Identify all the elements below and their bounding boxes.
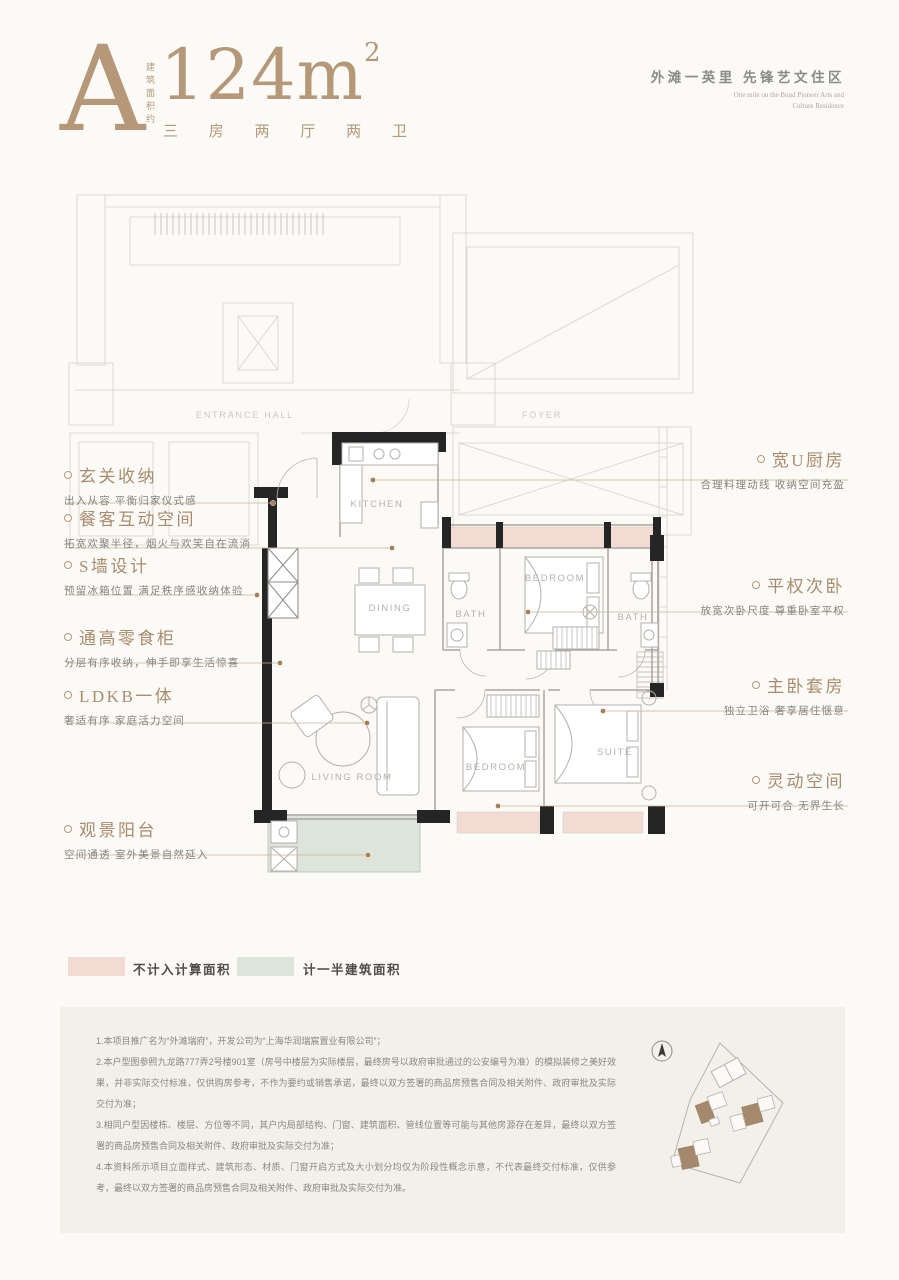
bedroom2-label: BEDROOM bbox=[466, 762, 526, 773]
project-tagline-cn: 外滩一英里 先锋艺文住区 bbox=[651, 66, 845, 86]
annotation-desc: 合理料理动线 收纳空间充盈 bbox=[615, 477, 845, 492]
annotation-desc: 拓宽欢聚半径，烟火与欢笑自在流淌 bbox=[64, 536, 294, 551]
project-tagline-en: One mile on the Bund Pioneer Arts and Cu… bbox=[734, 90, 844, 112]
annotation-ldkb: LDKB一体 奢适有序 家庭活力空间 bbox=[64, 682, 294, 728]
annotation-title: 玄关收纳 bbox=[79, 462, 157, 487]
legend-swatch-green bbox=[237, 957, 294, 976]
floorplan-page: A 建筑面积约 124m2 三 房 两 厅 两 卫 外滩一英里 先锋艺文住区 O… bbox=[0, 0, 899, 1280]
site-building-cluster-3 bbox=[668, 1139, 712, 1172]
annotation-desc: 放宽次卧尺度 尊重卧室平权 bbox=[615, 603, 845, 618]
annotation-title: 宽U厨房 bbox=[772, 446, 845, 471]
compass-needle bbox=[658, 1043, 666, 1057]
bath1-label: BATH bbox=[455, 609, 486, 620]
annotation-desc: 奢适有序 家庭活力空间 bbox=[64, 713, 294, 728]
tagline-en-line1: One mile on the Bund Pioneer Arts and bbox=[734, 90, 844, 101]
annotation-master-suite: 主卧套房 独立卫浴 奢享居住惬意 bbox=[615, 672, 845, 718]
annotation-entry-storage: 玄关收纳 出入从容 平衡归家仪式感 bbox=[64, 462, 294, 508]
annotation-snack-cabinet: 通高零食柜 分层有序收纳，伸手即享生活惊喜 bbox=[64, 624, 294, 670]
site-building-outline bbox=[711, 1058, 746, 1088]
upper-stair-hatch bbox=[155, 213, 323, 235]
ring-bullet-icon bbox=[64, 561, 72, 569]
tagline-en-line2: Culture Residence bbox=[734, 101, 844, 112]
annotation-desc: 可开可合 无界生长 bbox=[615, 798, 845, 813]
annotation-title: 平权次卧 bbox=[767, 572, 845, 597]
suite-label: SUITE bbox=[597, 747, 633, 758]
ring-bullet-icon bbox=[64, 633, 72, 641]
entrance-hall-label: ENTRANCE HALL bbox=[196, 410, 294, 420]
disclaimer-panel: 1.本项目推广名为“外滩瑞府”，开发公司为“上海华润瑞宸置业有限公司”； 2.本… bbox=[60, 1007, 845, 1233]
annotation-title: 通高零食柜 bbox=[79, 624, 177, 649]
disclaimer-item: 1.本项目推广名为“外滩瑞府”，开发公司为“上海华润瑞宸置业有限公司”； bbox=[96, 1031, 616, 1052]
annotation-desc: 空间通透 室外美景自然延入 bbox=[64, 847, 294, 862]
site-building-cluster-1 bbox=[694, 1092, 732, 1130]
annotation-desc: 独立卫浴 奢享居住惬意 bbox=[615, 703, 845, 718]
unit-letter: A bbox=[60, 30, 145, 148]
annotation-s-wall: S墙设计 预留冰箱位置 满足秩序感收纳体验 bbox=[64, 552, 294, 598]
area-value: 124m2 bbox=[160, 40, 381, 110]
foyer-label: FOYER bbox=[522, 410, 562, 420]
annotation-u-kitchen: 宽U厨房 合理料理动线 收纳空间充盈 bbox=[615, 446, 845, 492]
annotation-desc: 预留冰箱位置 满足秩序感收纳体验 bbox=[64, 583, 294, 598]
annotation-title: 观景阳台 bbox=[79, 816, 157, 841]
kitchen-label: KITCHEN bbox=[351, 499, 404, 510]
annotation-equal-bedroom: 平权次卧 放宽次卧尺度 尊重卧室平权 bbox=[615, 572, 845, 618]
annotation-title: 灵动空间 bbox=[767, 767, 845, 792]
ring-bullet-icon bbox=[752, 681, 760, 689]
disclaimer-item: 4.本资料所示项目立面样式、建筑形态、材质、门窗开启方式及大小划分均仅为阶段性概… bbox=[96, 1157, 616, 1199]
layout-spec: 三 房 两 厅 两 卫 bbox=[163, 120, 420, 141]
ring-bullet-icon bbox=[64, 691, 72, 699]
area-prefix: 建筑面积约 bbox=[144, 62, 157, 158]
area-number: 124m bbox=[160, 34, 364, 116]
legend-label-pink: 不计入计算面积 bbox=[133, 959, 231, 978]
disclaimer-item: 2.本户型图参照九龙路777弄2号楼901室（房号中楼层为实际楼层，最终房号以政… bbox=[96, 1052, 616, 1115]
annotation-title: LDKB一体 bbox=[79, 682, 174, 707]
legend-label-green: 计一半建筑面积 bbox=[303, 959, 401, 978]
disclaimer-text: 1.本项目推广名为“外滩瑞府”，开发公司为“上海华润瑞宸置业有限公司”； 2.本… bbox=[96, 1031, 616, 1199]
annotation-balcony: 观景阳台 空间通透 室外美景自然延入 bbox=[64, 816, 294, 862]
disclaimer-item: 3.相同户型因楼栋、楼层、方位等不同，其户内局部结构、门窗、建筑面积、管线位置等… bbox=[96, 1115, 616, 1157]
bedroom1-label: BEDROOM bbox=[525, 573, 585, 584]
annotation-title: 主卧套房 bbox=[767, 672, 845, 697]
annotation-dining-living: 餐客互动空间 拓宽欢聚半径，烟火与欢笑自在流淌 bbox=[64, 505, 294, 551]
ring-bullet-icon bbox=[64, 471, 72, 479]
furniture bbox=[271, 443, 658, 871]
annotation-desc: 分层有序收纳，伸手即享生活惊喜 bbox=[64, 655, 294, 670]
ring-bullet-icon bbox=[64, 825, 72, 833]
annotation-title: S墙设计 bbox=[79, 552, 149, 577]
annotation-title: 餐客互动空间 bbox=[79, 505, 196, 530]
site-map bbox=[648, 1035, 826, 1211]
dining-label: DINING bbox=[369, 603, 412, 614]
ring-bullet-icon bbox=[752, 776, 760, 784]
annotation-flex-space: 灵动空间 可开可合 无界生长 bbox=[615, 767, 845, 813]
living-room-label: LIVING ROOM bbox=[312, 772, 393, 783]
ring-bullet-icon bbox=[752, 581, 760, 589]
legend-swatch-pink bbox=[68, 957, 125, 976]
ring-bullet-icon bbox=[757, 455, 765, 463]
area-superscript: 2 bbox=[364, 38, 381, 68]
ring-bullet-icon bbox=[64, 514, 72, 522]
